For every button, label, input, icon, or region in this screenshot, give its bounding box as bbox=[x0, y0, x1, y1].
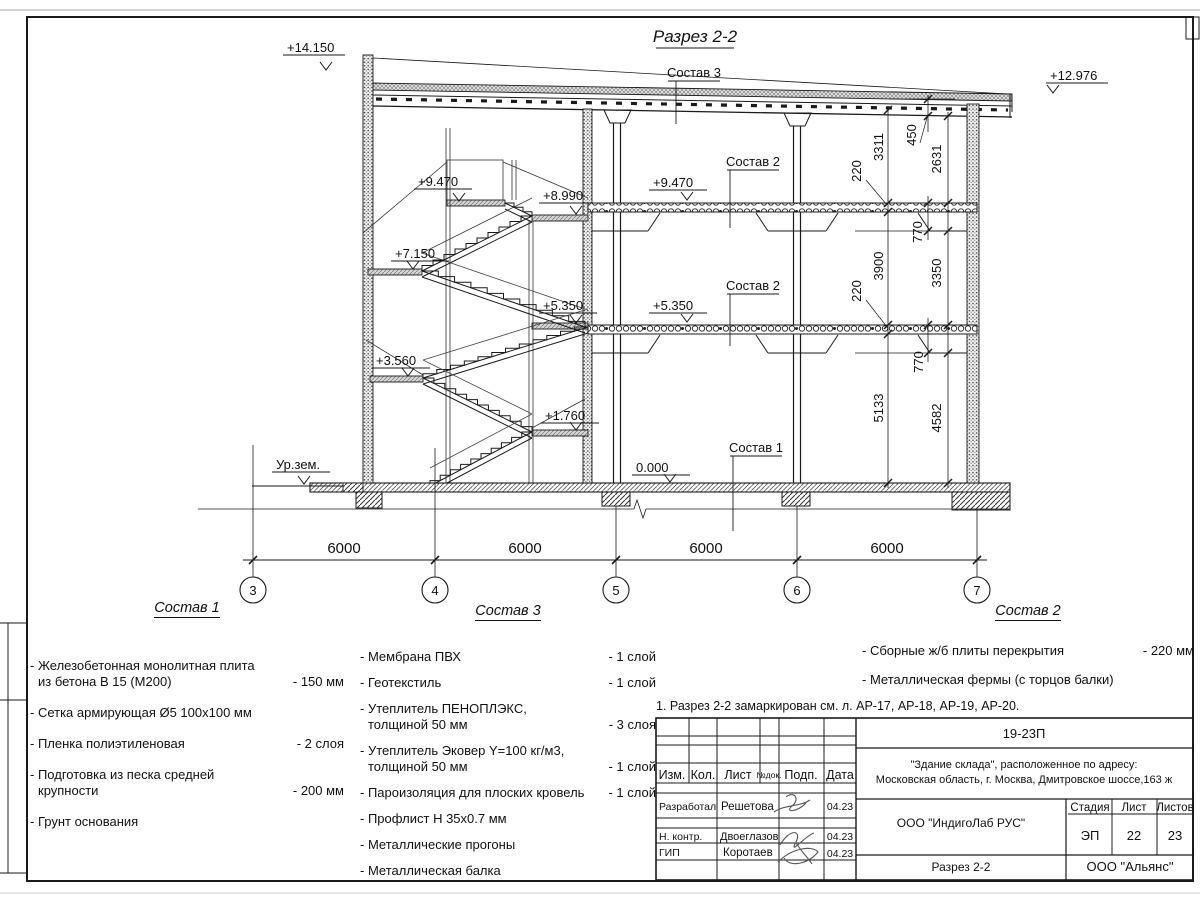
doc-number: 19-23П bbox=[1003, 726, 1046, 741]
col-header: Лист bbox=[724, 768, 751, 782]
list-item: - Утеплитель Эковер Y=100 кг/м3,толщиной… bbox=[360, 743, 656, 775]
elevation-label: +12.976 bbox=[1050, 68, 1097, 83]
bottom-dimensions bbox=[240, 445, 990, 603]
grid-axis: 6 bbox=[793, 583, 800, 598]
grid-axis: 5 bbox=[612, 583, 619, 598]
span-dim: 6000 bbox=[508, 540, 541, 557]
list-item: - Профлист Н 35x0.7 мм bbox=[360, 811, 656, 827]
list-item: - Пленка полиэтиленовая - 2 слоя bbox=[30, 736, 344, 752]
dim: 770 bbox=[911, 351, 926, 373]
stair-stringer bbox=[422, 222, 532, 277]
grid-axis: 4 bbox=[431, 583, 438, 598]
leader-label: Состав 2 bbox=[726, 278, 780, 293]
date: 04.23 bbox=[827, 801, 853, 813]
col-header: Подп. bbox=[784, 768, 817, 782]
composition-1-list: Состав 1 - Железобетонная монолитная пли… bbox=[30, 600, 344, 840]
name: Решетова bbox=[721, 801, 774, 813]
right-wall bbox=[967, 104, 979, 484]
list-item: - Пароизоляция для плоских кровель- 1 сл… bbox=[360, 785, 656, 801]
elevation-label: +8.990 bbox=[543, 188, 583, 203]
elevation-label: +9.470 bbox=[418, 174, 458, 189]
dim: 2631 bbox=[929, 145, 944, 174]
stage-value: ЭП bbox=[1081, 828, 1100, 843]
dim: 3311 bbox=[871, 133, 886, 161]
elevation-label: +1.760 bbox=[545, 408, 585, 423]
project-name-2: Московская область, г. Москва, Дмитровск… bbox=[876, 774, 1173, 786]
dim: 220 bbox=[849, 160, 864, 182]
sheet-title: Разрез 2-2 bbox=[932, 860, 991, 874]
stairwell-wall bbox=[583, 109, 592, 484]
grid-axis: 3 bbox=[249, 583, 256, 598]
dim: 450 bbox=[904, 124, 919, 146]
leader-label: Состав 1 bbox=[729, 440, 783, 455]
section-title: Разрез 2-2 bbox=[653, 27, 738, 46]
date: 04.23 bbox=[827, 848, 853, 860]
composition-2-list: Состав 2 - Сборные ж/б плиты перекрытия-… bbox=[862, 603, 1194, 698]
stair-flights bbox=[422, 198, 588, 492]
leader-label: Состав 3 bbox=[667, 65, 721, 80]
composition-1-title: Состав 1 bbox=[30, 600, 344, 616]
company: ООО "ИндигоЛаб РУС" bbox=[897, 816, 1025, 830]
drawing-note: 1. Разрез 2-2 замаркирован см. л. АР-17,… bbox=[656, 699, 1019, 713]
footing bbox=[952, 492, 1010, 510]
ground bbox=[198, 483, 1010, 518]
elevation-label: +5.350 bbox=[543, 298, 583, 313]
stair-railing bbox=[430, 414, 532, 468]
name: Двоеглазов bbox=[720, 831, 779, 843]
composition-3-title: Состав 3 bbox=[360, 603, 656, 619]
list-item: - Металлическая балка bbox=[360, 863, 656, 879]
grid-bubble-labels: 3 4 5 6 7 bbox=[249, 583, 980, 598]
stair-stringer bbox=[423, 384, 532, 438]
ground-level-label: Ур.зем. bbox=[276, 457, 320, 472]
elevation-label: +14.150 bbox=[287, 40, 334, 55]
elevation-label: +3.560 bbox=[376, 353, 416, 368]
dim: 3350 bbox=[929, 259, 944, 288]
list-item: - Железобетонная монолитная плитаиз бето… bbox=[30, 658, 344, 690]
list-item: - Подготовка из песка среднейкрупности -… bbox=[30, 767, 344, 799]
list-item: - Геотекстиль- 1 слой bbox=[360, 675, 656, 691]
date: 04.23 bbox=[827, 831, 853, 843]
grid-axis: 7 bbox=[973, 583, 980, 598]
dim: 3900 bbox=[871, 252, 886, 281]
span-dim: 6000 bbox=[870, 540, 903, 557]
right-dimension-labels: 3311 220 3900 220 5133 450 770 770 2631 … bbox=[849, 124, 944, 432]
elevation-label: +7.150 bbox=[395, 246, 435, 261]
project-name-1: "Здание склада", расположенное по адресу… bbox=[911, 759, 1138, 771]
stair-railing bbox=[423, 360, 532, 414]
list-item: - Сетка армирующая Ø5 100x100 мм bbox=[30, 705, 344, 721]
role: Разработал bbox=[659, 801, 716, 813]
role: ГИП bbox=[659, 847, 680, 859]
footing bbox=[782, 492, 810, 506]
sheets-label: Листов bbox=[1156, 802, 1193, 814]
dim: 770 bbox=[910, 221, 925, 243]
span-dim: 6000 bbox=[327, 540, 360, 557]
column-capital bbox=[784, 113, 811, 126]
sheet-label: Лист bbox=[1122, 802, 1148, 814]
column-capital bbox=[604, 110, 631, 123]
dim: 5133 bbox=[871, 394, 886, 423]
stair-stringer bbox=[423, 333, 588, 384]
span-dim: 6000 bbox=[689, 540, 722, 557]
leader-label: Состав 2 bbox=[726, 154, 780, 169]
list-item: - Мембрана ПВХ- 1 слой bbox=[360, 649, 656, 665]
walls bbox=[363, 55, 979, 484]
footing bbox=[356, 492, 382, 508]
signature bbox=[778, 833, 818, 864]
elevation-label: +5.350 bbox=[653, 298, 693, 313]
list-item: - Металлические прогоны bbox=[360, 837, 656, 853]
bottom-dimension-labels: 6000 6000 6000 6000 bbox=[327, 540, 903, 557]
elevation-label: +9.470 bbox=[653, 175, 693, 190]
list-item: - Сборные ж/б плиты перекрытия- 220 мм bbox=[862, 643, 1194, 659]
role: Н. контр. bbox=[659, 831, 702, 843]
stage-label: Стадия bbox=[1070, 802, 1109, 814]
composition-3-list: Состав 3 - Мембрана ПВХ- 1 слой - Геотек… bbox=[360, 603, 656, 889]
dim: 220 bbox=[849, 280, 864, 302]
blueprint-sheet: { "fig": { "title": "Разрез 2-2" }, "ele… bbox=[0, 0, 1200, 900]
composition-2-title: Состав 2 bbox=[862, 603, 1194, 619]
drawing-title: Разрез 2-2 bbox=[653, 27, 738, 48]
col-header: Дата bbox=[826, 768, 854, 782]
sheet-value: 22 bbox=[1127, 828, 1141, 843]
apron bbox=[343, 483, 363, 492]
list-item: - Грунт основания bbox=[30, 814, 344, 830]
col-header: Изм. bbox=[659, 768, 686, 782]
col-header: №док. bbox=[757, 770, 782, 780]
col-header: Кол. bbox=[691, 768, 716, 782]
sheets-value: 23 bbox=[1168, 828, 1182, 843]
name: Коротаев bbox=[723, 847, 773, 859]
org2: ООО "Альянс" bbox=[1087, 859, 1174, 874]
footing bbox=[602, 492, 630, 506]
elevation-label: 0.000 bbox=[636, 460, 669, 475]
dim: 4582 bbox=[929, 404, 944, 433]
list-item: - Утеплитель ПЕНОПЛЭКС,толщиной 50 мм - … bbox=[360, 701, 656, 733]
list-item: - Металлическая фермы (с торцов балки) bbox=[862, 672, 1194, 688]
